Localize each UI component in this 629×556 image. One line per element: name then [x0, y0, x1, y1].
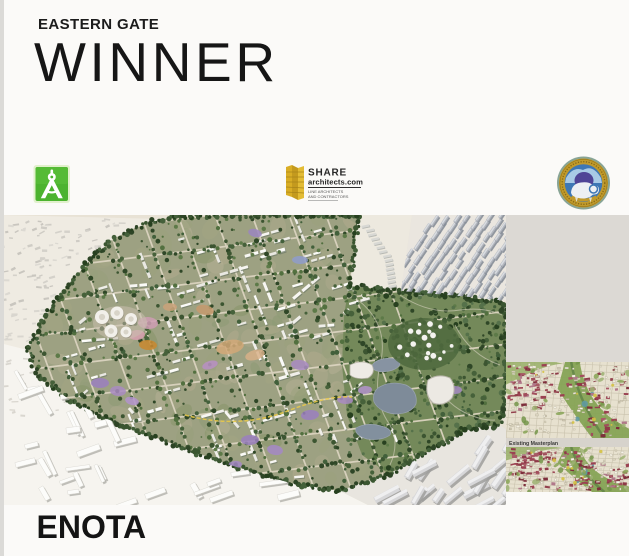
svg-text:architects.com: architects.com [308, 178, 363, 187]
svg-text:Existing Masterplan: Existing Masterplan [509, 441, 558, 447]
svg-text:AND CONTRACTORS: AND CONTRACTORS [308, 194, 349, 199]
